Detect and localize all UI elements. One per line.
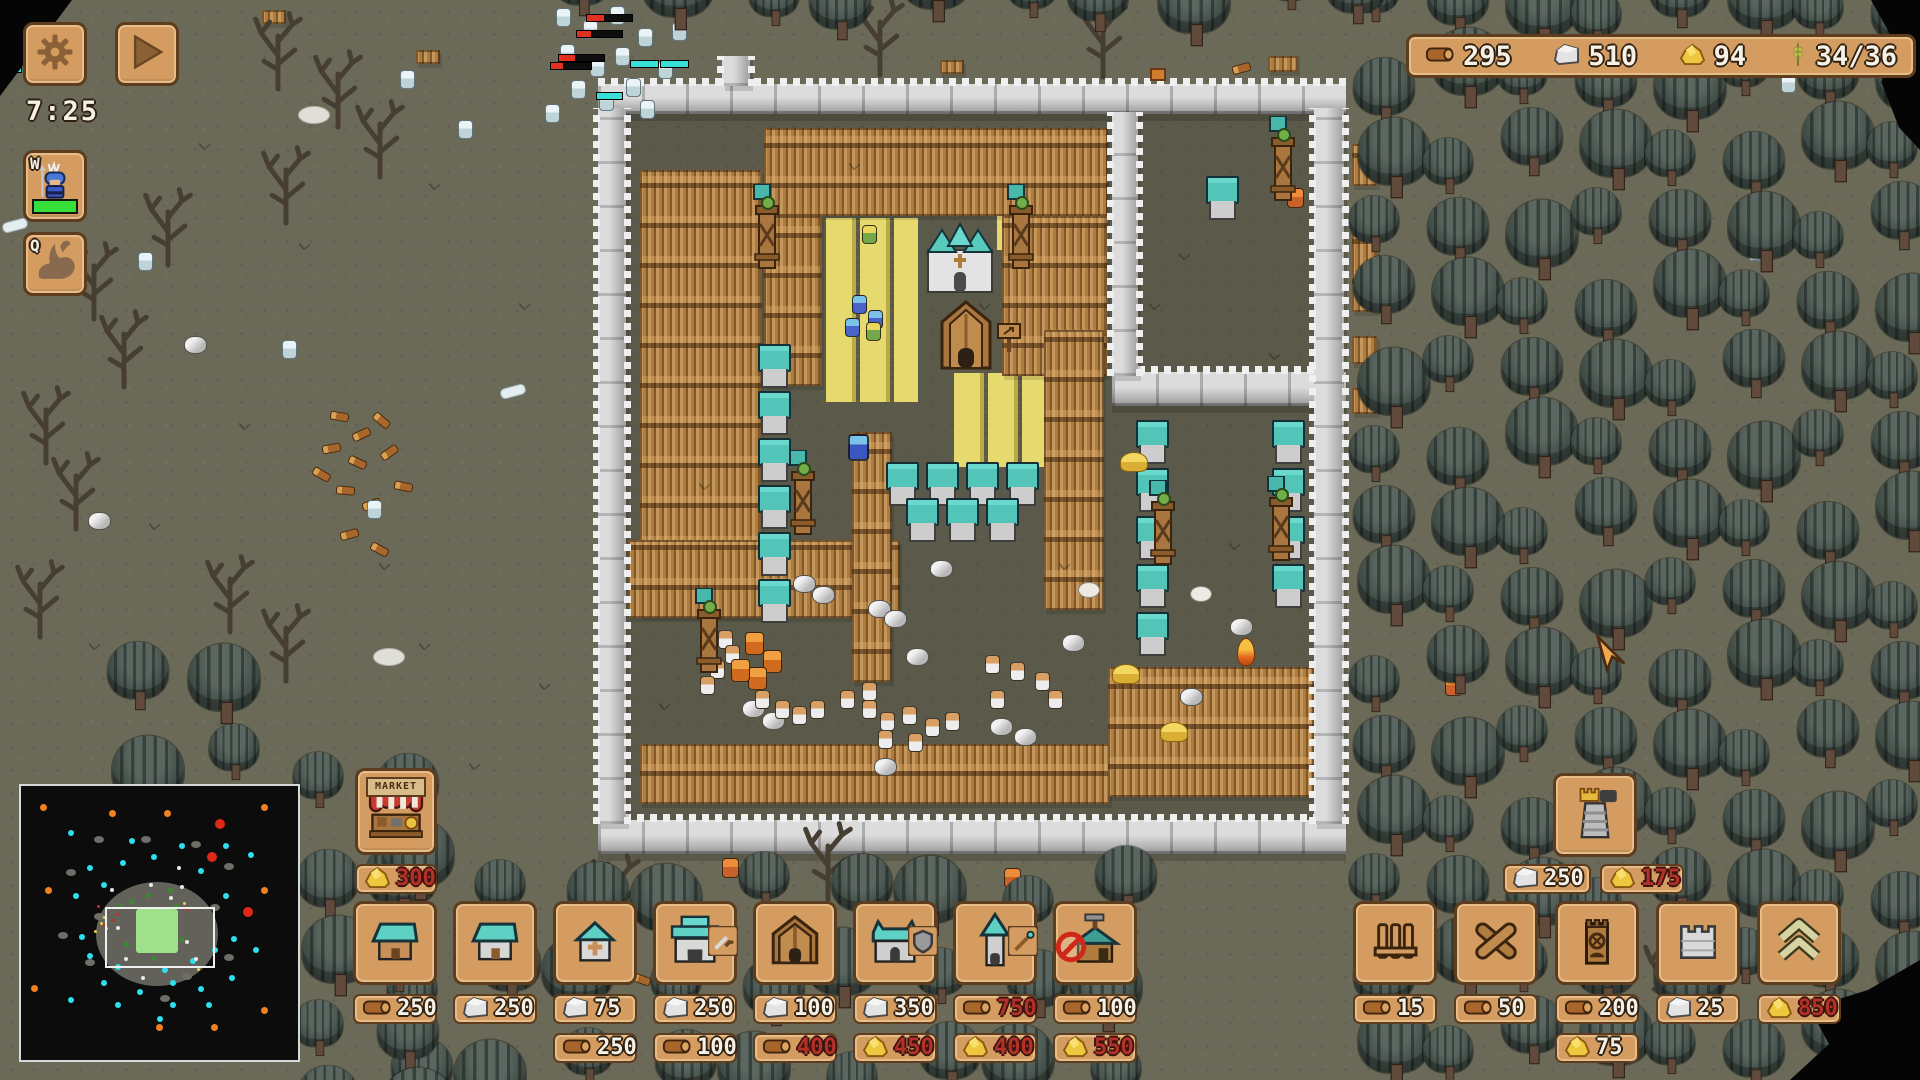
villager-unit[interactable] <box>840 690 855 709</box>
house-building[interactable] <box>1206 176 1239 220</box>
willow-tree <box>1358 348 1430 429</box>
villager-unit[interactable] <box>775 700 790 719</box>
willow-tree <box>1645 130 1695 186</box>
house-building[interactable] <box>758 438 791 482</box>
unit-health-bar <box>586 14 633 22</box>
willow-tree <box>1349 426 1399 482</box>
willow-tree <box>1650 420 1711 488</box>
willow-tree <box>1650 190 1711 258</box>
totem-cost-badge: 200 <box>1555 994 1639 1024</box>
house-building[interactable] <box>1136 612 1169 656</box>
wood-fence[interactable] <box>764 128 1108 216</box>
wood-icon <box>1463 997 1493 1021</box>
sheep[interactable] <box>1190 586 1212 602</box>
church-icon <box>566 912 624 974</box>
minimap-enemy-dot <box>79 934 85 940</box>
game-timer: 7:25 <box>26 96 99 127</box>
minimap-enemy-dot <box>223 893 229 899</box>
house-building[interactable] <box>946 498 979 542</box>
willow-tree <box>1349 656 1399 712</box>
villager-unit[interactable] <box>792 706 807 725</box>
house-building[interactable] <box>986 498 1019 542</box>
shop-item-barn: 100400 <box>753 901 837 1063</box>
skeleton-enemy[interactable] <box>571 80 586 99</box>
sheep[interactable] <box>1078 582 1100 598</box>
minimap-resource-dot <box>197 968 200 971</box>
minimap-creature-dot <box>261 887 268 894</box>
willow-tree <box>1423 566 1473 622</box>
wood-fence[interactable] <box>940 60 964 74</box>
knight-unit[interactable] <box>852 295 867 314</box>
stone-wall[interactable] <box>722 56 750 86</box>
minimap-unit-dot <box>177 866 181 870</box>
house-building[interactable] <box>758 344 791 388</box>
dead-tree <box>250 8 306 92</box>
keep-cost-badge: 100 <box>653 1033 737 1063</box>
grass-tuft <box>88 638 101 651</box>
willow-tree <box>1432 718 1504 799</box>
tower-cost-stone-value: 250 <box>1544 868 1584 890</box>
willow-tree <box>1719 500 1769 556</box>
shop-item-barracks: 350450 <box>853 901 937 1063</box>
stone-wall-cost-badge: 25 <box>1656 994 1740 1024</box>
willow-tree <box>298 1066 359 1080</box>
willow-tree <box>1802 332 1874 413</box>
willow-tree <box>1502 568 1563 636</box>
lion-unit[interactable] <box>745 632 764 655</box>
willow-tree <box>810 0 871 40</box>
willow-tree <box>1872 642 1920 710</box>
rock <box>1230 618 1253 636</box>
minimap-grass-dot <box>129 899 134 904</box>
totem-cost-value: 75 <box>1596 1037 1623 1059</box>
stone-wall[interactable] <box>598 108 626 824</box>
willow-tree <box>1580 110 1652 191</box>
sword-overlay-icon <box>708 926 738 956</box>
log <box>321 442 341 454</box>
keep-cost-badge: 250 <box>653 994 737 1024</box>
minimap-grass-dot <box>146 893 151 898</box>
bones <box>499 383 527 400</box>
minimap-enemy-dot <box>101 980 107 986</box>
willow-tree <box>1265 0 1315 10</box>
unit-health-bar <box>630 60 659 68</box>
grass-tuft <box>238 418 251 431</box>
minimap-enemy-dot <box>253 947 259 953</box>
minimap-unit-dot <box>149 883 153 887</box>
hay-field[interactable] <box>950 373 1044 467</box>
willow-tree <box>1576 280 1637 348</box>
willow-tree <box>1358 118 1430 199</box>
willow-tree <box>1724 560 1785 628</box>
keep-cost-value: 100 <box>697 1037 737 1059</box>
willow-tree <box>1650 0 1711 28</box>
population-icon <box>1788 40 1808 72</box>
willow-tree <box>1423 796 1473 852</box>
log <box>311 466 332 483</box>
workshop-cost-value: 100 <box>1097 998 1137 1020</box>
minimap-tree-blob <box>182 973 192 980</box>
minimap-enemy-dot <box>120 860 126 866</box>
wood-fence[interactable] <box>1268 56 1298 72</box>
willow-tree <box>1576 478 1637 546</box>
dead-tree <box>48 448 104 532</box>
unit-health-bar <box>576 30 623 38</box>
dead-tree <box>12 556 68 640</box>
house-stone-cost-badge: 250 <box>453 994 537 1024</box>
willow-tree <box>1423 138 1473 194</box>
wood-icon <box>762 1036 792 1060</box>
cannon-tower-icon <box>1566 784 1624 846</box>
grass-tuft <box>198 138 211 151</box>
watchtower[interactable] <box>1148 480 1178 568</box>
settings-button[interactable] <box>23 22 87 86</box>
unit-health-bar <box>596 92 623 100</box>
log <box>1231 62 1252 76</box>
skeleton-enemy[interactable] <box>282 340 297 359</box>
wood-icon <box>662 1036 692 1060</box>
shop-item-gate: 50 <box>1454 901 1538 1024</box>
willow-tree <box>1802 102 1874 183</box>
willow-tree <box>188 644 260 725</box>
unit-health-bar <box>660 60 689 68</box>
minimap-creature-dot <box>261 1007 268 1014</box>
crate <box>1150 68 1166 81</box>
minimap-boss-dot <box>207 852 217 862</box>
fence-cost-badge: 15 <box>1353 994 1437 1024</box>
willow-tree <box>382 1068 454 1080</box>
minimap-enemy-dot <box>137 989 143 995</box>
smoke-puff <box>373 648 405 666</box>
skeleton-enemy[interactable] <box>400 70 415 89</box>
skeleton-enemy[interactable] <box>638 28 653 47</box>
build-barn-button[interactable] <box>753 901 837 985</box>
resource-population: 34/36 <box>1788 40 1897 72</box>
hero-portrait-button[interactable]: W <box>23 150 87 222</box>
unit-health-bar <box>550 62 592 70</box>
signpost <box>996 322 1022 356</box>
stone-wall[interactable] <box>1112 112 1138 376</box>
willow-tree <box>293 1000 343 1056</box>
villager-unit[interactable] <box>985 655 1000 674</box>
watchtower[interactable] <box>1006 184 1036 272</box>
chevrons-icon <box>1771 913 1827 973</box>
gear-icon <box>34 31 76 77</box>
rock <box>1014 728 1037 746</box>
stone-icon <box>1553 43 1580 70</box>
build-upgrade-button[interactable] <box>1757 901 1841 985</box>
wood-icon <box>562 1036 592 1060</box>
cannon-tower-button[interactable] <box>1553 773 1637 857</box>
wood-fence[interactable] <box>1108 667 1314 797</box>
watchtower[interactable] <box>752 184 782 272</box>
gold-icon <box>1564 1035 1591 1062</box>
resource-stone: 510 <box>1553 43 1637 70</box>
keep-cost-value: 250 <box>694 998 734 1020</box>
villager-unit[interactable] <box>810 700 825 719</box>
house-building[interactable] <box>1272 420 1305 464</box>
build-gate-button[interactable] <box>1454 901 1538 985</box>
log <box>369 541 390 558</box>
minimap-tree-blob <box>94 913 104 920</box>
willow-tree <box>642 0 714 30</box>
stone-wall[interactable] <box>598 84 1346 114</box>
wood-icon <box>1062 997 1092 1021</box>
archer-unit[interactable] <box>862 225 877 244</box>
lion-unit[interactable] <box>748 667 767 690</box>
tower-cost-stone-badge: 250 <box>1503 864 1591 894</box>
grass-tuft <box>378 558 391 571</box>
house-building[interactable] <box>758 532 791 576</box>
wood-icon <box>1362 997 1392 1021</box>
minimap-grass-dot <box>168 888 173 893</box>
totem-icon <box>1569 912 1625 974</box>
skeleton-enemy[interactable] <box>626 78 641 97</box>
gold-icon <box>364 866 391 893</box>
minimap-creature-dot <box>109 810 116 817</box>
wood-icon <box>362 997 392 1021</box>
stone-icon <box>662 996 689 1023</box>
villager-unit[interactable] <box>945 712 960 731</box>
minimap-enemy-dot <box>73 893 79 899</box>
minimap-tree-blob <box>191 841 201 848</box>
house-wood-cost-value: 250 <box>397 998 437 1020</box>
grass-tuft <box>298 238 311 251</box>
build-barracks-button[interactable] <box>853 901 937 985</box>
villager-unit[interactable] <box>700 676 715 695</box>
willow-tree <box>1068 0 1129 32</box>
build-church-button[interactable] <box>553 901 637 985</box>
skeleton-enemy[interactable] <box>640 100 655 119</box>
wood-icon <box>1425 44 1455 68</box>
archer-unit[interactable] <box>866 322 881 341</box>
house-building[interactable] <box>1136 564 1169 608</box>
gold-pile <box>1112 664 1140 684</box>
house-building[interactable] <box>1272 564 1305 608</box>
watchtower[interactable] <box>1266 476 1296 564</box>
lion-unit[interactable] <box>731 659 750 682</box>
grass-tuft <box>428 178 441 191</box>
willow-tree <box>1432 488 1504 569</box>
villager-unit[interactable] <box>1010 662 1025 681</box>
grass-tuft <box>538 678 551 691</box>
willow-tree <box>1876 472 1920 553</box>
minimap-creature-dot <box>211 1024 218 1031</box>
stone-wall[interactable] <box>1314 108 1344 824</box>
minimap[interactable] <box>19 784 300 1062</box>
villager-unit[interactable] <box>878 730 893 749</box>
barn-building[interactable] <box>938 300 994 374</box>
barracks-cost-value: 450 <box>894 1037 934 1059</box>
willow-tree <box>1645 1018 1695 1074</box>
wood-fence[interactable] <box>416 50 440 64</box>
willow-tree <box>1719 730 1769 786</box>
stone-wall-cost-value: 25 <box>1697 998 1724 1020</box>
willow-tree <box>1645 558 1695 614</box>
willow-tree <box>1354 716 1415 784</box>
minimap-resource-dot <box>100 922 103 925</box>
shop-item-fence: 15 <box>1353 901 1437 1024</box>
house-building[interactable] <box>758 579 791 623</box>
willow-tree <box>1645 788 1695 844</box>
barn-cost-badge: 100 <box>753 994 837 1024</box>
minimap-enemy-dot <box>129 838 135 844</box>
willow-tree <box>1793 410 1843 466</box>
shop-item-mage-tower: 750400 <box>953 901 1037 1063</box>
villager-unit[interactable] <box>755 690 770 709</box>
willow-tree <box>1872 182 1920 250</box>
dead-tree <box>96 306 152 390</box>
gold-icon <box>1766 996 1793 1023</box>
mouse-cursor-arrow <box>1594 634 1628 674</box>
willow-tree <box>1423 336 1473 392</box>
willow-tree <box>1571 418 1621 474</box>
stone-icon <box>762 996 789 1023</box>
willow-tree <box>739 852 789 908</box>
grass-tuft <box>518 298 531 311</box>
workshop-cost-badge: 100 <box>1053 994 1137 1024</box>
rabbit-ability-button[interactable]: Q <box>23 232 87 296</box>
willow-tree <box>1798 502 1859 570</box>
willow-tree <box>1423 1026 1473 1080</box>
rock <box>990 718 1013 736</box>
house-building[interactable] <box>758 485 791 529</box>
church-cost-badge: 75 <box>553 994 637 1024</box>
skeleton-enemy[interactable] <box>458 120 473 139</box>
resource-wood: 295 <box>1425 43 1512 70</box>
market-cost-value: 300 <box>396 868 436 890</box>
willow-tree <box>1793 640 1843 696</box>
villager-unit[interactable] <box>880 712 895 731</box>
willow-tree <box>108 642 169 710</box>
minimap-creature-dot <box>40 804 47 811</box>
resource-wood-value: 295 <box>1463 43 1512 70</box>
gold-icon <box>862 1035 889 1062</box>
workshop-cost-value: 550 <box>1094 1037 1134 1059</box>
barn-icon <box>766 912 824 974</box>
villager-unit[interactable] <box>1048 690 1063 709</box>
minimap-enemy-dot <box>87 865 93 871</box>
rock <box>884 610 907 628</box>
willow-tree <box>1580 340 1652 421</box>
fox-unit[interactable] <box>722 858 739 878</box>
unit-health-bar <box>558 54 605 62</box>
willow-tree <box>1358 546 1430 627</box>
church-cost-badge: 250 <box>553 1033 637 1063</box>
watchtower[interactable] <box>694 588 724 676</box>
bones <box>1 217 29 234</box>
willow-tree <box>1872 412 1920 480</box>
hero-unit[interactable] <box>848 434 869 461</box>
villager-unit[interactable] <box>902 706 917 725</box>
minimap-creature-dot <box>164 810 171 817</box>
willow-tree <box>900 0 972 22</box>
build-house-stone-button[interactable] <box>453 901 537 985</box>
build-house-wood-button[interactable] <box>353 901 437 985</box>
willow-tree <box>1506 398 1578 479</box>
house2-icon <box>466 912 524 974</box>
mage-tower-cost-value: 400 <box>994 1037 1034 1059</box>
willow-tree <box>1645 360 1695 416</box>
dead-tree <box>258 142 314 226</box>
skeleton-enemy[interactable] <box>615 47 630 66</box>
minimap-tree-blob <box>66 869 76 876</box>
resource-bar: 2955109434/36 <box>1406 34 1916 78</box>
willow-tree <box>1724 132 1785 200</box>
house-building[interactable] <box>758 391 791 435</box>
villager-unit[interactable] <box>862 682 877 701</box>
villager-unit[interactable] <box>990 690 1005 709</box>
minimap-enemy-dot <box>170 980 176 986</box>
log <box>351 426 372 442</box>
resource-gold-value: 94 <box>1714 43 1747 70</box>
skeleton-enemy[interactable] <box>545 104 560 123</box>
wall-icon <box>1673 916 1723 970</box>
minimap-boss-dot <box>243 907 253 917</box>
build-stone-wall-button[interactable] <box>1656 901 1740 985</box>
wood-fence[interactable] <box>640 744 1110 804</box>
market-button[interactable]: MARKET <box>355 768 437 855</box>
build-mage-tower-button[interactable] <box>953 901 1037 985</box>
build-workshop-button[interactable] <box>1053 901 1137 985</box>
rock <box>812 586 835 604</box>
grass-tuft <box>418 638 431 651</box>
ban-overlay-icon <box>1054 930 1084 960</box>
shop-item-house-stone: 250 <box>453 901 537 1024</box>
play-button[interactable] <box>115 22 179 86</box>
minimap-danger-dot <box>97 905 100 908</box>
willow-tree <box>1798 272 1859 340</box>
resource-gold: 94 <box>1679 43 1747 70</box>
willow-tree <box>1007 0 1057 18</box>
minimap-tree-blob <box>160 995 170 1002</box>
villager-unit[interactable] <box>925 718 940 737</box>
willow-tree <box>1358 776 1430 857</box>
barn-cost-badge: 400 <box>753 1033 837 1063</box>
willow-tree <box>1876 274 1920 355</box>
wood-fence[interactable] <box>1044 330 1104 610</box>
willow-tree <box>1728 422 1800 503</box>
stone-wall[interactable] <box>598 820 1346 854</box>
willow-tree <box>1724 790 1785 858</box>
build-fence-button[interactable] <box>1353 901 1437 985</box>
knight-unit[interactable] <box>845 318 860 337</box>
watchtower[interactable] <box>1268 116 1298 204</box>
house-building[interactable] <box>906 498 939 542</box>
willow-tree <box>1497 508 1547 564</box>
minimap-unit-dot <box>110 888 114 892</box>
minimap-tree-blob <box>94 836 104 843</box>
villager-unit[interactable] <box>908 733 923 752</box>
minimap-enemy-dot <box>151 854 157 860</box>
skeleton-enemy[interactable] <box>367 500 382 519</box>
build-keep-button[interactable] <box>653 901 737 985</box>
grass-tuft <box>468 758 481 771</box>
wood-icon <box>962 997 992 1021</box>
gold-icon <box>962 1035 989 1062</box>
willow-tree <box>1576 708 1637 776</box>
villager-unit[interactable] <box>1035 672 1050 691</box>
watchtower[interactable] <box>788 450 818 538</box>
resource-population-value: 34/36 <box>1816 43 1897 70</box>
fence-icon <box>1367 913 1423 973</box>
church-building[interactable] <box>920 220 1000 298</box>
willow-tree <box>1354 486 1415 554</box>
minimap-enemy-dot <box>179 843 185 849</box>
build-totem-button[interactable] <box>1555 901 1639 985</box>
willow-tree <box>1802 562 1874 643</box>
villager-unit[interactable] <box>862 700 877 719</box>
